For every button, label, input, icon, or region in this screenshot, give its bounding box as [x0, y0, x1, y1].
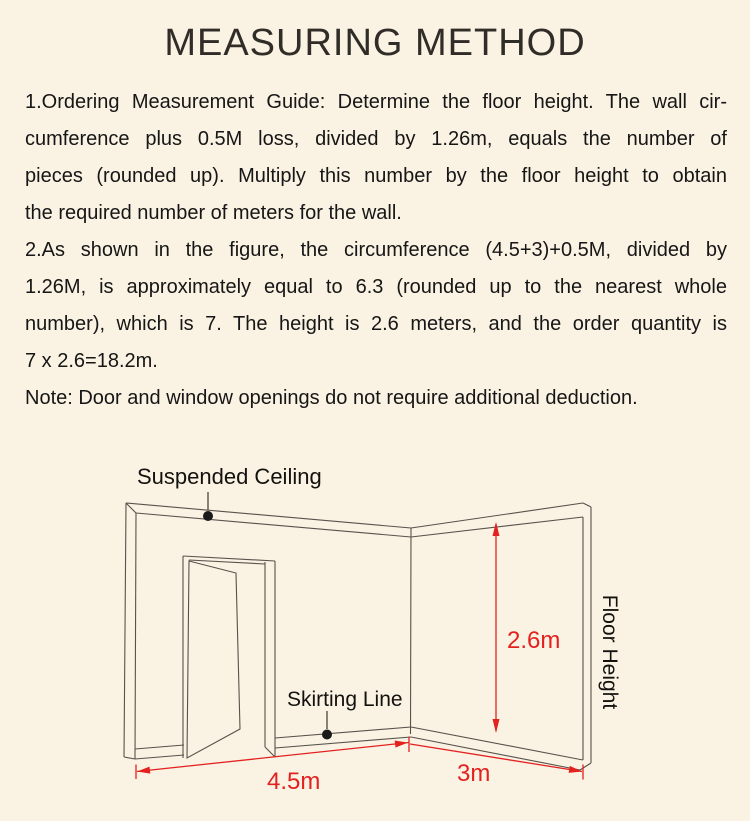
- left-wall-dimension-value: 4.5m: [267, 768, 320, 796]
- right-wall-dimension-value: 3m: [457, 760, 490, 788]
- left-wall: [124, 503, 411, 759]
- open-door-panel: [187, 561, 240, 758]
- skirting-line-left: [275, 727, 411, 738]
- skirting-line-label: Skirting Line: [287, 688, 403, 712]
- height-dimension-value: 2.6m: [507, 627, 560, 655]
- skirting-dot: [322, 730, 332, 740]
- ceiling-line: [136, 513, 411, 537]
- skirting-line-left: [135, 745, 184, 749]
- dimension-right-wall-3m: [410, 744, 583, 780]
- suspended-ceiling-label: Suspended Ceiling: [137, 464, 322, 490]
- door: [183, 556, 275, 758]
- ceiling-dot: [203, 511, 213, 521]
- corner-edge: [411, 528, 412, 734]
- dimension-height-2-6m: [493, 522, 500, 733]
- ceiling-line: [411, 503, 583, 528]
- right-wall: [411, 503, 592, 770]
- measuring-method-infographic: MEASURING METHOD 1.Ordering Measurement …: [0, 0, 750, 821]
- skirting-line-right: [411, 727, 583, 760]
- floor-height-label: Floor Height: [597, 595, 621, 709]
